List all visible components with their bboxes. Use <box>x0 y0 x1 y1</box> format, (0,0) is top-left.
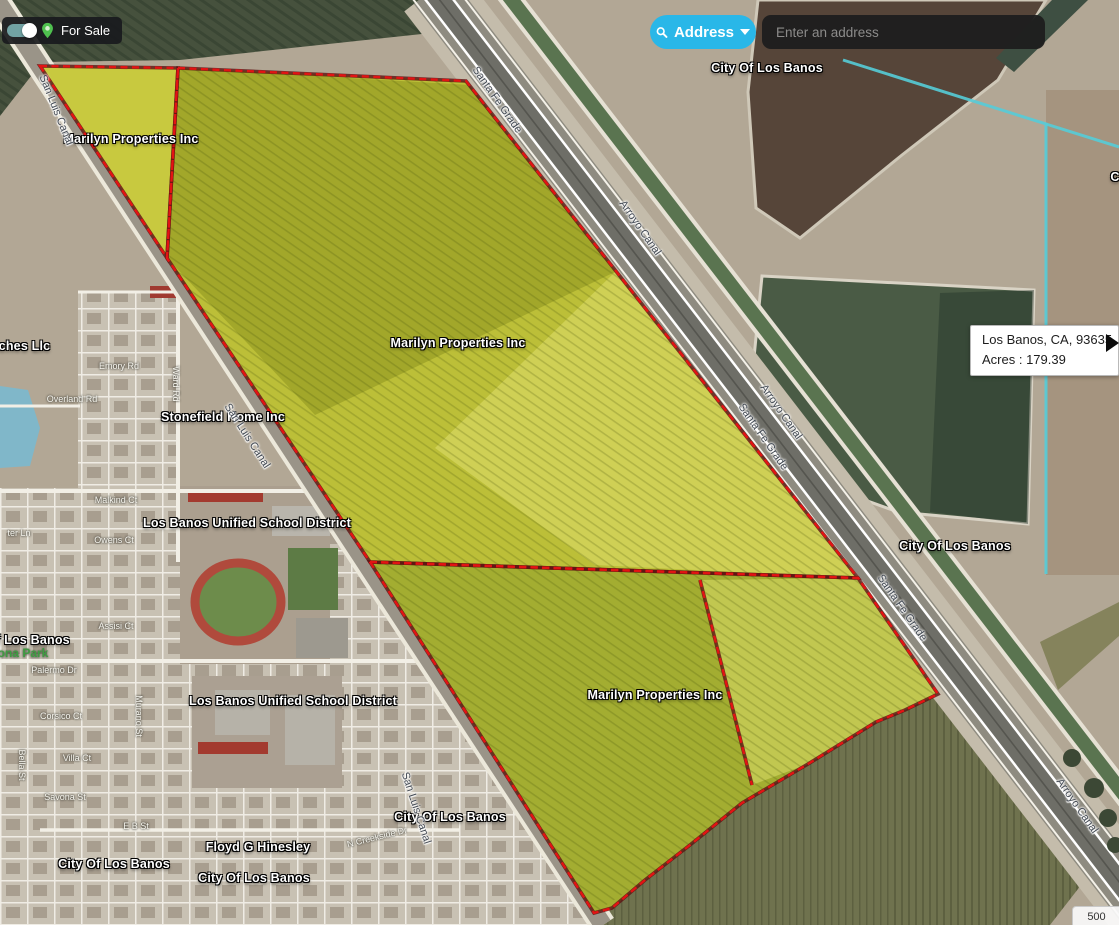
address-input[interactable] <box>762 15 1045 49</box>
address-button-label: Address <box>674 24 734 41</box>
cursor-arrow-icon <box>1106 334 1119 352</box>
green-field <box>288 548 338 610</box>
school2-building-2 <box>285 695 335 765</box>
marker-pin-icon <box>41 22 54 39</box>
running-track <box>195 563 281 641</box>
toggle-knob <box>22 23 37 38</box>
chevron-down-icon <box>740 29 750 35</box>
map-scale-indicator: 500 <box>1072 906 1119 925</box>
aerial-map-canvas[interactable] <box>0 0 1119 925</box>
map-viewport[interactable]: City Of Los BanosMarilyn Properties IncM… <box>0 0 1119 925</box>
tooltip-location: Los Banos, CA, 93635 <box>982 330 1118 350</box>
for-sale-toggle[interactable] <box>7 24 34 37</box>
residential-upper <box>78 292 180 490</box>
scale-value: 500 <box>1087 911 1105 923</box>
for-sale-control[interactable]: For Sale <box>2 17 122 44</box>
parcel-info-tooltip: Los Banos, CA, 93635 Acres : 179.39 <box>970 325 1119 376</box>
search-icon <box>656 25 668 40</box>
for-sale-label: For Sale <box>61 23 110 38</box>
school-building-2 <box>296 618 348 658</box>
red-roof-building-3 <box>198 742 268 754</box>
school2-building-1 <box>215 690 270 735</box>
tooltip-acres: Acres : 179.39 <box>982 350 1118 370</box>
address-search-button[interactable]: Address <box>650 15 756 49</box>
